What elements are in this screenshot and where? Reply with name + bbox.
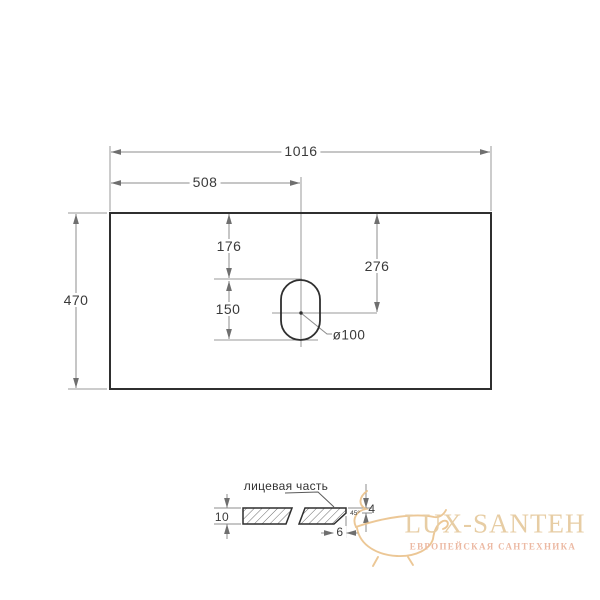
section-piece-left	[243, 508, 292, 524]
dim-label-half-width: 508	[190, 175, 221, 189]
dim-label-depth: 470	[61, 293, 92, 307]
technical-drawing-page: 1016 508 470 176 276 150 ø100 лицевая ча…	[0, 0, 600, 600]
section-face-label: лицевая часть	[244, 480, 328, 492]
watermark-tagline: ЕВРОПЕЙСКАЯ САНТЕХНИКА	[410, 543, 576, 552]
dim-label-thickness: 10	[212, 511, 232, 523]
dim-label-hole-top-offset: 176	[214, 239, 245, 253]
watermark-brand: LUX-SANTEH	[405, 511, 586, 538]
dim-label-hole-diameter: ø100	[333, 328, 366, 342]
dim-label-total-width: 1016	[281, 144, 320, 158]
dim-label-chamfer-angle: 45°	[350, 511, 360, 518]
dim-label-hole-height: 150	[213, 302, 244, 316]
dim-label-edge-height: 4	[368, 503, 375, 515]
leader-face-label	[285, 492, 334, 507]
dim-label-chamfer-width: 6	[333, 526, 346, 538]
countertop-outline	[110, 213, 491, 389]
dim-label-hole-center-offset: 276	[362, 259, 393, 273]
hole-center-dot	[299, 311, 302, 314]
top-view	[68, 146, 491, 389]
section-piece-right	[299, 508, 346, 524]
